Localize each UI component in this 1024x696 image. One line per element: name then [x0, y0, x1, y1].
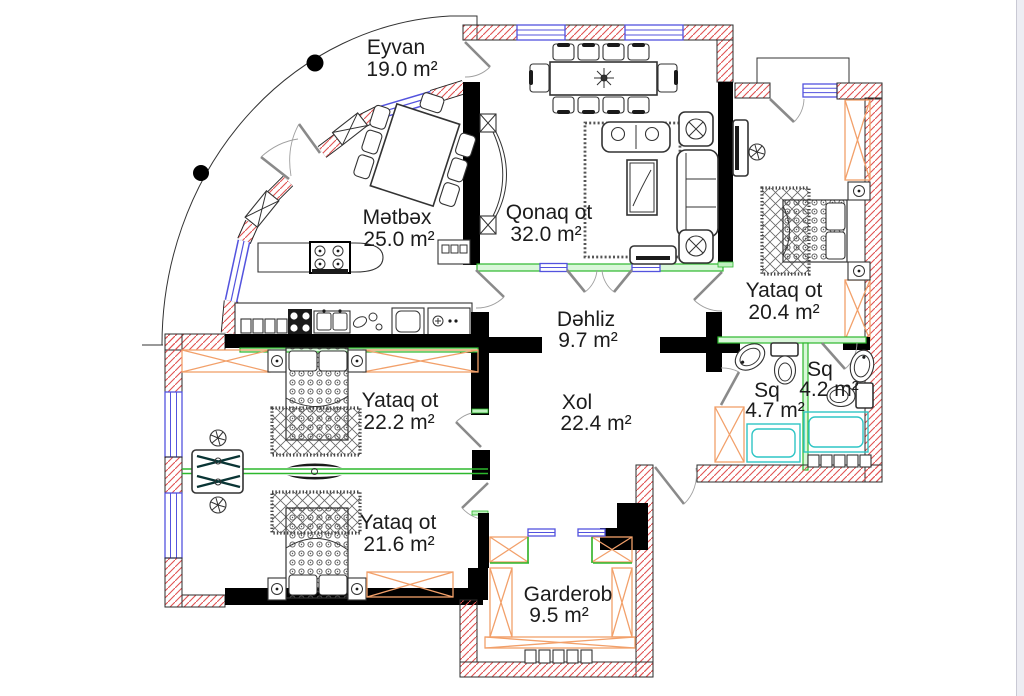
room-area-sq-left: 4.7 m²: [745, 399, 805, 422]
wall-hatch: [683, 25, 733, 40]
wall-hatch: [165, 457, 182, 493]
dining-chair: [578, 97, 599, 114]
washing-machine: [392, 308, 424, 335]
wardrobe: [182, 350, 270, 372]
floor-plan-canvas: Eyvan 19.0 m² Mətbəx 25.0 m² Qonaq ot 32…: [0, 0, 1024, 696]
window: [165, 392, 182, 457]
wall-hatch: [460, 662, 653, 677]
ceiling-fan-icon: [210, 430, 226, 446]
window: [803, 84, 837, 97]
shelf: [490, 537, 528, 562]
room-label-xol: Xol: [562, 391, 592, 414]
entry-garderob: [460, 465, 697, 677]
radiator: [525, 650, 592, 663]
window: [517, 25, 565, 40]
bathtub: [747, 424, 800, 462]
nightstand: [848, 262, 870, 280]
radiator: [808, 455, 871, 467]
hanger-rail: [528, 529, 555, 536]
wall-black: [468, 568, 488, 600]
balcony-outline: [757, 58, 849, 83]
hanger-rail: [578, 529, 605, 536]
wall-hatch: [165, 558, 182, 607]
column: [307, 55, 324, 72]
dining-chair: [553, 97, 574, 114]
nightstand: [268, 578, 286, 600]
cooktop: [310, 242, 350, 274]
threshold: [472, 409, 488, 413]
wall-black: [718, 82, 733, 265]
page-edge-strip: [1016, 0, 1024, 696]
room-label-dehliz: Dəhliz: [557, 308, 615, 331]
wall-black: [471, 312, 489, 415]
shelf: [490, 568, 512, 637]
wall-black: [463, 82, 480, 265]
stove: [288, 309, 312, 335]
nightstand: [348, 578, 366, 600]
dining-chair: [603, 43, 624, 60]
window: [165, 493, 182, 558]
eyvan-kitchen-door: [261, 124, 320, 179]
bed: [783, 200, 847, 262]
wall-black: [225, 334, 472, 348]
partition-table: [287, 464, 342, 480]
room-area-dehliz: 9.7 m²: [558, 329, 618, 352]
room-area-yataq-right: 20.4 m²: [748, 301, 819, 324]
wall-hatch: [460, 600, 477, 662]
nightstand: [348, 350, 366, 372]
room-label-qonaq-ot: Qonaq ot: [506, 201, 593, 224]
dining-chair: [658, 64, 678, 92]
coffee-table: [627, 160, 657, 215]
wall-hatch: [463, 25, 517, 40]
room-area-sq-right: 4.2 m²: [799, 378, 859, 401]
bed: [286, 348, 348, 440]
room-area-xol: 22.4 m²: [560, 412, 631, 435]
room-area-eyvan: 19.0 m²: [366, 58, 437, 81]
double-door: [567, 270, 632, 292]
eyvan-living-door: [465, 42, 490, 77]
column: [193, 165, 209, 181]
room-area-qonaq-ot: 32.0 m²: [510, 223, 581, 246]
chandelier-icon: [594, 68, 614, 88]
pier-box: [245, 191, 279, 227]
cabinet: [428, 308, 470, 335]
wall-black: [472, 450, 490, 480]
bedroom-dehliz-door: [694, 272, 722, 311]
bathroom-door: [721, 368, 739, 405]
tv-cabinet: [733, 120, 748, 176]
wardrobe: [363, 350, 478, 372]
fridge: [438, 240, 470, 264]
shelf: [612, 568, 632, 637]
kitchen-dehliz-door: [476, 270, 504, 308]
toilet: [771, 343, 798, 384]
wall-hatch: [837, 83, 882, 99]
threshold: [718, 262, 733, 267]
room-area-garderob: 9.5 m²: [529, 604, 589, 627]
bedroom-door: [770, 99, 804, 122]
wall-black: [478, 513, 489, 568]
dining-chair: [628, 43, 649, 60]
wall-niche: [480, 114, 507, 234]
window: [625, 25, 683, 40]
room-label-yataq-bottom: Yataq ot: [360, 511, 437, 534]
dining-chair: [578, 43, 599, 60]
room-label-eyvan: Eyvan: [367, 36, 425, 59]
ceiling-fan-icon: [749, 144, 765, 160]
room-area-yataq-bottom: 21.6 m²: [363, 533, 434, 556]
loveseat: [602, 122, 670, 152]
shelf: [715, 407, 744, 462]
bathtub: [804, 412, 868, 452]
dining-chair: [603, 97, 624, 114]
sofa: [677, 150, 718, 237]
tv-cabinet: [630, 246, 676, 264]
armchair: [679, 112, 713, 146]
room-label-garderob: Garderob: [524, 583, 613, 606]
dining-chair: [529, 64, 549, 92]
kitchen-counter: [235, 303, 472, 335]
wall-hatch: [636, 465, 653, 677]
nightstand: [848, 182, 870, 200]
partition-wall: [718, 337, 866, 343]
room-area-yataq-middle: 22.2 m²: [363, 411, 434, 434]
room-label-yataq-middle: Yataq ot: [362, 389, 439, 412]
glass-partition: [477, 264, 723, 271]
dining-chair: [553, 43, 574, 60]
wall-hatch: [717, 40, 733, 82]
room-area-metbex: 25.0 m²: [363, 228, 434, 251]
wall-hatch: [735, 83, 770, 98]
nightstand: [268, 350, 286, 372]
shelf: [485, 637, 635, 648]
bed: [286, 508, 348, 598]
wall-hatch: [565, 25, 625, 40]
entry-door: [655, 467, 697, 504]
dining-chair: [628, 97, 649, 114]
bedroom-door: [456, 412, 481, 447]
double-sink: [314, 309, 350, 333]
wall-hatch: [165, 334, 182, 392]
room-label-yataq-right: Yataq ot: [746, 279, 823, 302]
wall-hatch: [182, 595, 225, 607]
room-label-metbex: Mətbəx: [363, 206, 432, 229]
window: [540, 264, 567, 272]
armchair: [679, 230, 713, 263]
ceiling-fan-icon: [210, 497, 226, 513]
